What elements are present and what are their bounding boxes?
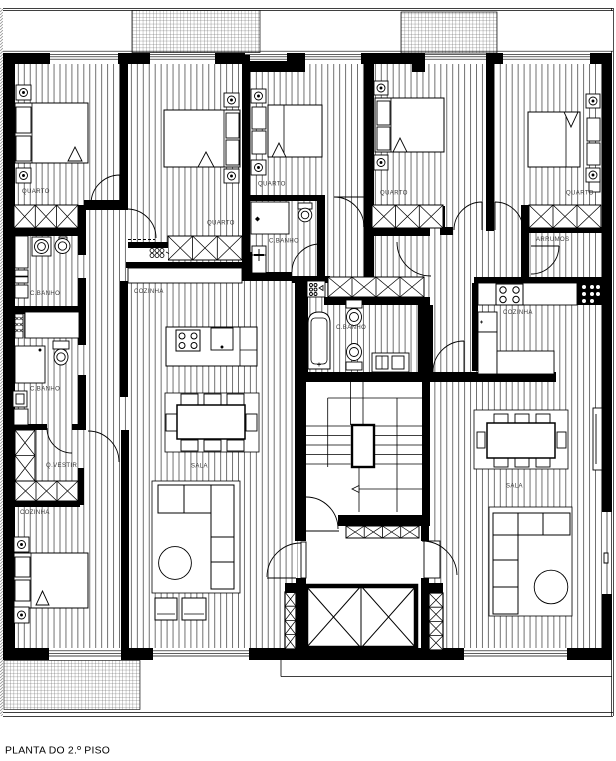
svg-text:PLANTA DO 2.º PISO: PLANTA DO 2.º PISO <box>5 746 110 757</box>
svg-text:C.BANHO: C.BANHO <box>30 291 60 297</box>
svg-text:QUARTO: QUARTO <box>380 191 408 197</box>
svg-text:COZINHA: COZINHA <box>134 289 164 295</box>
svg-text:QUARTO: QUARTO <box>258 182 286 188</box>
svg-text:QUARTO: QUARTO <box>566 191 594 197</box>
svg-text:ARRUMOS: ARRUMOS <box>536 237 569 243</box>
svg-text:C.BANHO: C.BANHO <box>269 239 299 245</box>
svg-text:SALA: SALA <box>506 484 523 490</box>
svg-text:COZINHA: COZINHA <box>20 510 50 516</box>
svg-text:C.BANHO: C.BANHO <box>30 387 60 393</box>
svg-text:QUARTO: QUARTO <box>207 221 235 227</box>
svg-text:SALA: SALA <box>191 464 208 470</box>
svg-text:QUARTO: QUARTO <box>22 189 50 195</box>
svg-text:Q.VESTIR: Q.VESTIR <box>46 463 77 469</box>
svg-text:C.BANHO: C.BANHO <box>336 325 366 331</box>
svg-text:COZINHA: COZINHA <box>503 310 533 316</box>
